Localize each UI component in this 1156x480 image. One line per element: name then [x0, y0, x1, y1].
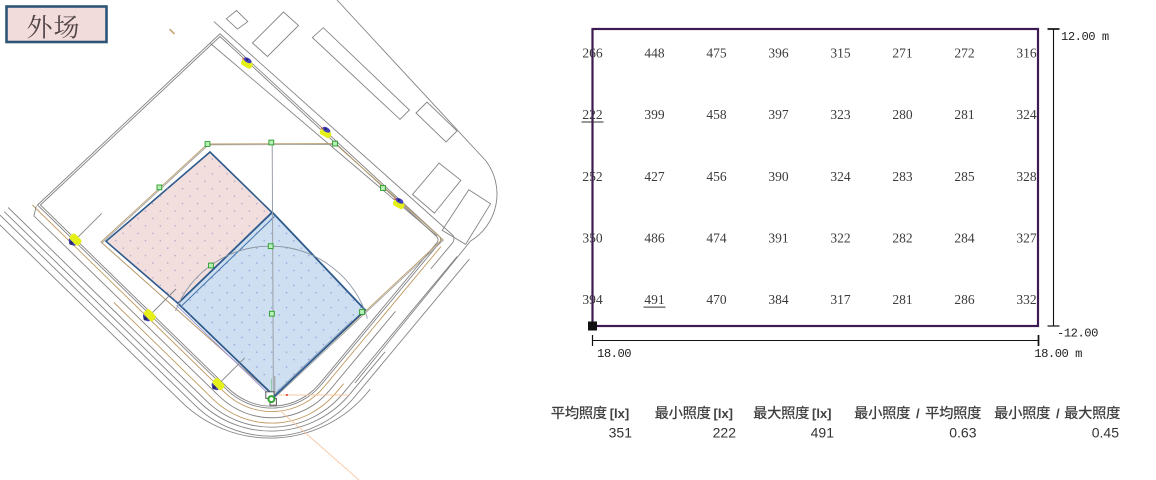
- svg-text:323: 323: [830, 107, 851, 122]
- svg-text:456: 456: [706, 169, 727, 184]
- svg-text:399: 399: [644, 107, 665, 122]
- svg-text:280: 280: [892, 107, 913, 122]
- svg-text:281: 281: [954, 107, 974, 122]
- svg-text:285: 285: [954, 169, 975, 184]
- svg-text:324: 324: [1016, 107, 1037, 122]
- svg-text:491: 491: [811, 425, 835, 441]
- svg-text:222: 222: [582, 107, 602, 122]
- svg-text:448: 448: [644, 45, 665, 60]
- svg-text:[lx]: [lx]: [610, 406, 630, 421]
- svg-text:322: 322: [830, 231, 850, 246]
- svg-text:-12.00: -12.00: [1057, 327, 1098, 341]
- svg-text:324: 324: [830, 169, 851, 184]
- svg-text:283: 283: [892, 169, 913, 184]
- svg-text:351: 351: [609, 425, 633, 441]
- svg-text:470: 470: [706, 292, 727, 307]
- svg-text:391: 391: [768, 231, 788, 246]
- svg-text:18.00: 18.00: [597, 347, 631, 361]
- svg-text:252: 252: [582, 169, 602, 184]
- svg-text:271: 271: [892, 45, 912, 60]
- svg-text:/: /: [1056, 406, 1060, 421]
- svg-text:491: 491: [644, 292, 664, 307]
- svg-text:284: 284: [954, 231, 975, 246]
- svg-text:12.00 m: 12.00 m: [1061, 30, 1109, 44]
- svg-text:316: 316: [1016, 45, 1037, 60]
- svg-text:427: 427: [644, 169, 665, 184]
- svg-text:0.63: 0.63: [949, 425, 976, 441]
- svg-text:281: 281: [892, 292, 912, 307]
- svg-text:486: 486: [644, 231, 665, 246]
- svg-text:350: 350: [582, 231, 603, 246]
- svg-text:222: 222: [713, 425, 737, 441]
- svg-text:[lx]: [lx]: [714, 406, 734, 421]
- svg-text:286: 286: [954, 292, 975, 307]
- svg-text:315: 315: [830, 45, 851, 60]
- svg-text:474: 474: [706, 231, 727, 246]
- svg-text:332: 332: [1016, 292, 1036, 307]
- svg-text:18.00 m: 18.00 m: [1034, 347, 1082, 361]
- svg-text:396: 396: [768, 45, 789, 60]
- svg-text:328: 328: [1016, 169, 1037, 184]
- svg-text:458: 458: [706, 107, 727, 122]
- svg-text:394: 394: [582, 292, 603, 307]
- svg-text:/: /: [916, 406, 920, 421]
- svg-text:272: 272: [954, 45, 974, 60]
- svg-text:317: 317: [830, 292, 851, 307]
- svg-text:0.45: 0.45: [1092, 425, 1119, 441]
- svg-text:282: 282: [892, 231, 912, 246]
- svg-text:397: 397: [768, 107, 789, 122]
- svg-text:390: 390: [768, 169, 789, 184]
- svg-text:384: 384: [768, 292, 789, 307]
- svg-text:[lx]: [lx]: [812, 406, 832, 421]
- svg-text:327: 327: [1016, 231, 1037, 246]
- svg-text:475: 475: [706, 45, 727, 60]
- svg-text:266: 266: [582, 45, 603, 60]
